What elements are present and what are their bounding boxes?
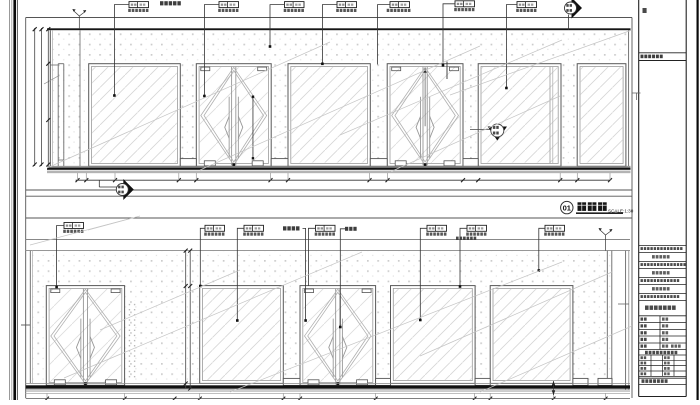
svg-text:SCALE:1:30: SCALE:1:30 (608, 208, 634, 213)
svg-text:01: 01 (563, 203, 571, 212)
